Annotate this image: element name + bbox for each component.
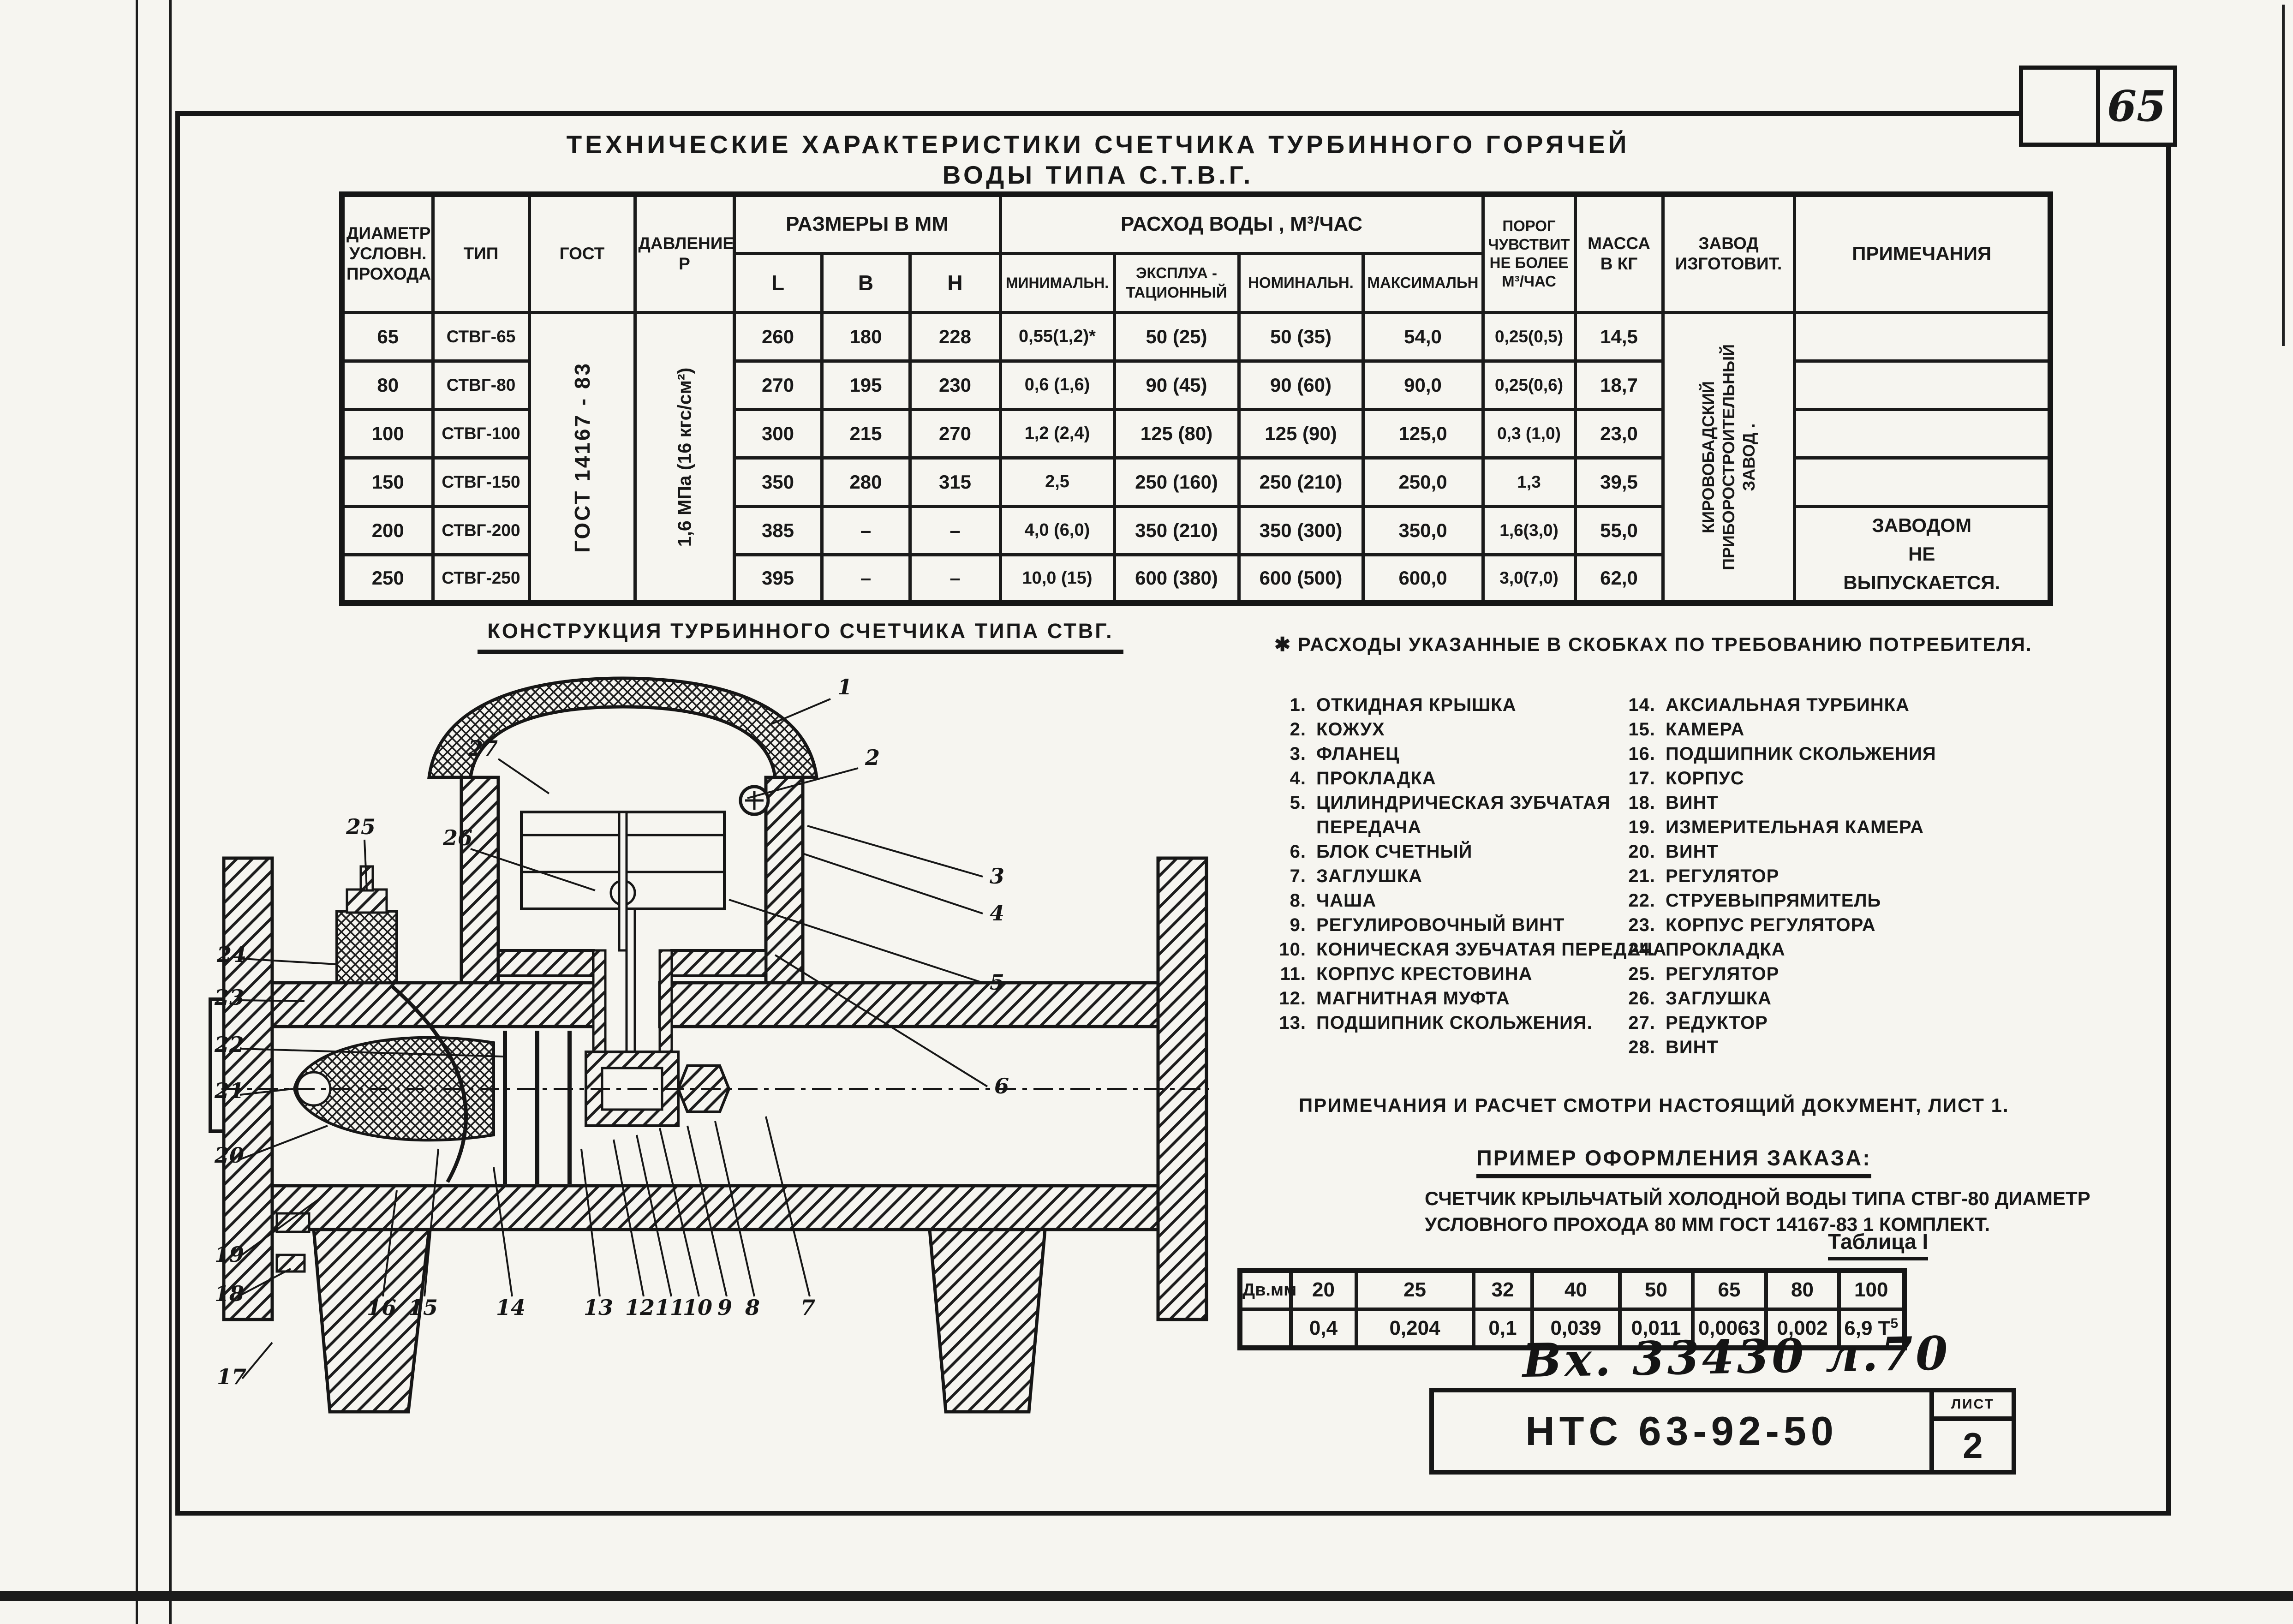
item-text: КАМЕРА (1666, 717, 2091, 742)
sheet-label: ЛИСТ (1934, 1392, 2012, 1421)
spec-cell: 0,3 (1,0) (1483, 409, 1575, 458)
list-item: 20.ВИНТ (1611, 840, 2091, 864)
spec-cell: – (822, 555, 910, 603)
part-label: 10 (683, 1295, 712, 1320)
col-header-oper: ЭКСПЛУА - ТАЦИОННЫЙ (1114, 253, 1239, 312)
col-group-flow: РАСХОД ВОДЫ , М³/ЧАС (1000, 194, 1483, 253)
item-number: 16. (1611, 742, 1666, 766)
item-text: ЗАГЛУШКА (1666, 986, 2091, 1011)
plant-merged-cell: КИРОВОБАДСКИЙ ПРИБОРОСТРОИТЕЛЬНЫЙ ЗАВОД … (1663, 312, 1794, 603)
list-item: 19.ИЗМЕРИТЕЛЬНАЯ КАМЕРА (1611, 815, 2091, 840)
part-label: 4 (990, 901, 1004, 925)
item-number: 18. (1611, 791, 1666, 815)
spec-cell: 50 (25) (1114, 312, 1239, 361)
spec-cell: 3,0(7,0) (1483, 555, 1575, 603)
list-item: 26.ЗАГЛУШКА (1611, 986, 2091, 1011)
item-number: 24. (1611, 937, 1666, 962)
table1-col: 100 (1839, 1271, 1905, 1309)
col-header-min: МИНИМАЛЬН. (1000, 253, 1114, 312)
item-text: РЕГУЛЯТОР (1666, 864, 2091, 889)
spec-cell: 215 (822, 409, 910, 458)
spec-cell: 350,0 (1363, 506, 1483, 555)
spec-cell: 230 (910, 361, 1000, 409)
spec-cell: 350 (210) (1114, 506, 1239, 555)
spec-cell: 150 (342, 458, 433, 506)
table1-value: 0,204 (1356, 1309, 1474, 1348)
spec-cell: СТВГ-100 (433, 409, 529, 458)
col-header-nom: НОМИНАЛЬН. (1239, 253, 1363, 312)
part-label: 23 (214, 985, 244, 1010)
spec-cell: 80 (342, 361, 433, 409)
spec-cell: 0,25(0,5) (1483, 312, 1575, 361)
part-label: 16 (367, 1295, 396, 1320)
part-label: 2 (865, 745, 880, 770)
spec-cell: 90 (45) (1114, 361, 1239, 409)
pressure-merged-cell: 1,6 МПа (16 кгс/см²) (635, 312, 734, 603)
drawing-title: КОНСТРУКЦИЯ ТУРБИННОГО СЧЕТЧИКА ТИПА СТВ… (478, 619, 1123, 654)
item-text: РЕГУЛЯТОР (1666, 962, 2091, 986)
col-header-B: В (822, 253, 910, 312)
spec-cell: 350 (300) (1239, 506, 1363, 555)
flow-footnote: ✱ РАСХОДЫ УКАЗАННЫЕ В СКОБКАХ ПО ТРЕБОВА… (1274, 633, 2128, 656)
item-number: 23. (1611, 913, 1666, 937)
spec-cell: 250 (160) (1114, 458, 1239, 506)
item-number: 27. (1611, 1011, 1666, 1035)
gost-value: ГОСТ 14167 - 83 (570, 314, 595, 600)
col-header-L: L (734, 253, 822, 312)
spec-cell: 600,0 (1363, 555, 1483, 603)
notes-merged-cell: ЗАВОДОМ НЕ ВЫПУСКАЕТСЯ. (1794, 506, 2050, 603)
list-item: 21.РЕГУЛЯТОР (1611, 864, 2091, 889)
spec-cell: 180 (822, 312, 910, 361)
order-example-body: СЧЕТЧИК КРЫЛЬЧАТЫЙ ХОЛОДНОЙ ВОДЫ ТИПА СТ… (1425, 1186, 2135, 1237)
page-number-box-empty (2019, 66, 2100, 147)
spec-cell: 90 (60) (1239, 361, 1363, 409)
item-text: ВИНТ (1666, 791, 2091, 815)
list-item: 17.КОРПУС (1611, 766, 2091, 791)
col-header-plant: ЗАВОД ИЗГОТОВИТ. (1663, 194, 1794, 312)
scan-right-streak (2282, 5, 2285, 346)
item-text: РЕДУКТОР (1666, 1011, 2091, 1035)
list-item: 14.АКСИАЛЬНАЯ ТУРБИНКА (1611, 693, 2091, 717)
part-label: 18 (215, 1281, 244, 1306)
spec-cell: 90,0 (1363, 361, 1483, 409)
item-number: 14. (1611, 693, 1666, 717)
spec-cell: 600 (380) (1114, 555, 1239, 603)
part-label: 7 (800, 1295, 815, 1320)
part-label: 14 (496, 1295, 525, 1320)
spec-cell: 200 (342, 506, 433, 555)
page-number: 65 (2107, 81, 2166, 131)
part-label: 13 (584, 1295, 613, 1320)
spec-cell: – (822, 506, 910, 555)
spec-cell: 0,25(0,6) (1483, 361, 1575, 409)
item-text: ПРОКЛАДКА (1666, 937, 2091, 962)
spec-table: ДИАМЕТР УСЛОВН. ПРОХОДА ТИП ГОСТ ДАВЛЕНИ… (339, 191, 2053, 606)
item-number: 4. (1262, 766, 1316, 791)
spec-cell: 600 (500) (1239, 555, 1363, 603)
col-header-mass: МАССА В КГ (1575, 194, 1663, 312)
notes-cell-empty (1794, 361, 2050, 409)
part-label: 24 (216, 942, 246, 967)
item-number: 9. (1262, 913, 1316, 937)
spec-cell: 250 (210) (1239, 458, 1363, 506)
item-number: 8. (1262, 889, 1316, 913)
spec-cell: 1,6(3,0) (1483, 506, 1575, 555)
list-item: 28.ВИНТ (1611, 1035, 2091, 1060)
spec-cell: СТВГ-65 (433, 312, 529, 361)
sheet-edge-line-2 (169, 0, 172, 1624)
turbine-meter-cross-section-drawing: 1 2 3 4 5 6 7 8 9 10 11 12 13 14 15 16 1… (198, 660, 1232, 1444)
table1-col: 32 (1474, 1271, 1532, 1309)
spec-cell: 250,0 (1363, 458, 1483, 506)
gost-merged-cell: ГОСТ 14167 - 83 (529, 312, 635, 603)
part-label: 27 (468, 736, 498, 761)
spec-cell: 10,0 (15) (1000, 555, 1114, 603)
spec-cell: 14,5 (1575, 312, 1663, 361)
spec-cell: – (910, 506, 1000, 555)
spec-cell: 1,3 (1483, 458, 1575, 506)
item-number: 6. (1262, 840, 1316, 864)
item-text: АКСИАЛЬНАЯ ТУРБИНКА (1666, 693, 2091, 717)
list-item: 15.КАМЕРА (1611, 717, 2091, 742)
notes-cell-empty (1794, 458, 2050, 506)
item-text: ПОДШИПНИК СКОЛЬЖЕНИЯ (1666, 742, 2091, 766)
order-example-title: ПРИМЕР ОФОРМЛЕНИЯ ЗАКАЗА: (1476, 1145, 1871, 1178)
spec-cell: СТВГ-80 (433, 361, 529, 409)
spec-cell: 315 (910, 458, 1000, 506)
scanned-engineering-sheet: { "page": { "number": "65", "sheet_label… (0, 0, 2293, 1624)
part-label: 8 (745, 1295, 760, 1320)
spec-cell: 228 (910, 312, 1000, 361)
part-label: 22 (214, 1032, 244, 1057)
table1-col: 80 (1766, 1271, 1839, 1309)
spec-cell: 350 (734, 458, 822, 506)
item-text: ВИНТ (1666, 840, 2091, 864)
part-label: 6 (994, 1074, 1009, 1099)
spec-cell: 0,6 (1,6) (1000, 361, 1114, 409)
item-number: 13. (1262, 1011, 1316, 1035)
item-text: СТРУЕВЫПРЯМИТЕЛЬ (1666, 889, 2091, 913)
col-header-type: ТИП (433, 194, 529, 312)
list-item: 24.ПРОКЛАДКА (1611, 937, 2091, 962)
spec-cell: – (910, 555, 1000, 603)
col-header-gost: ГОСТ (529, 194, 635, 312)
item-number: 2. (1262, 717, 1316, 742)
pressure-value: 1,6 МПа (16 кгс/см²) (674, 314, 695, 600)
spec-cell: 50 (35) (1239, 312, 1363, 361)
part-label: 1 (837, 675, 852, 699)
see-sheet-note: ПРИМЕЧАНИЯ И РАСЧЕТ СМОТРИ НАСТОЯЩИЙ ДОК… (1299, 1094, 2138, 1116)
item-text: ИЗМЕРИТЕЛЬНАЯ КАМЕРА (1666, 815, 2091, 840)
parts-list-right: 14.АКСИАЛЬНАЯ ТУРБИНКА 15.КАМЕРА 16.ПОДШ… (1611, 693, 2091, 1060)
spec-cell: 4,0 (6,0) (1000, 506, 1114, 555)
table1-col: 25 (1356, 1271, 1474, 1309)
part-label: 12 (625, 1295, 655, 1320)
page-number-box: 65 (2096, 66, 2177, 147)
spec-cell: 385 (734, 506, 822, 555)
part-label: 5 (990, 970, 1004, 995)
spec-cell: 54,0 (1363, 312, 1483, 361)
table1-row-label: Дв.мм (1240, 1271, 1291, 1309)
table1-col: 50 (1620, 1271, 1693, 1309)
item-number: 17. (1611, 766, 1666, 791)
item-number: 5. (1262, 791, 1316, 840)
list-item: 27.РЕДУКТОР (1611, 1011, 2091, 1035)
item-number: 11. (1262, 962, 1316, 986)
document-number: НТС 63-92-50 (1434, 1392, 1929, 1470)
col-header-diameter: ДИАМЕТР УСЛОВН. ПРОХОДА (342, 194, 433, 312)
spec-cell: 270 (910, 409, 1000, 458)
part-label: 3 (990, 864, 1004, 889)
table1-col: 40 (1532, 1271, 1620, 1309)
handwritten-registration: Вх. 33430 л.70 (1522, 1326, 1951, 1388)
spec-cell: 65 (342, 312, 433, 361)
item-number: 19. (1611, 815, 1666, 840)
sheet-cell: ЛИСТ 2 (1929, 1392, 2012, 1470)
item-text: КОРПУС (1666, 766, 2091, 791)
item-text: КОРПУС РЕГУЛЯТОРА (1666, 913, 2091, 937)
sheet-edge-line (136, 0, 138, 1624)
table1-value: 0,4 (1291, 1309, 1356, 1348)
item-number: 22. (1611, 889, 1666, 913)
item-number: 25. (1611, 962, 1666, 986)
item-number: 26. (1611, 986, 1666, 1011)
spec-cell: 39,5 (1575, 458, 1663, 506)
table1-col: 65 (1693, 1271, 1766, 1309)
spec-cell: 0,55(1,2)* (1000, 312, 1114, 361)
spec-cell: 280 (822, 458, 910, 506)
item-number: 1. (1262, 693, 1316, 717)
notes-cell-empty (1794, 312, 2050, 361)
col-header-max: МАКСИМАЛЬН (1363, 253, 1483, 312)
part-label: 17 (217, 1364, 246, 1389)
spec-cell: 195 (822, 361, 910, 409)
part-label: 25 (346, 814, 376, 839)
item-number: 21. (1611, 864, 1666, 889)
item-number: 12. (1262, 986, 1316, 1011)
sheet-number: 2 (1934, 1421, 2012, 1470)
spec-cell: 395 (734, 555, 822, 603)
item-number: 28. (1611, 1035, 1666, 1060)
spec-cell: 1,2 (2,4) (1000, 409, 1114, 458)
col-header-threshold: ПОРОГ ЧУВСТВИТ НЕ БОЛЕЕ М³/ЧАС (1483, 194, 1575, 312)
spec-cell: 250 (342, 555, 433, 603)
part-label: 21 (214, 1078, 244, 1103)
item-text: ВИНТ (1666, 1035, 2091, 1060)
col-header-H: Н (910, 253, 1000, 312)
part-label: 15 (408, 1295, 438, 1320)
list-item: 23.КОРПУС РЕГУЛЯТОРА (1611, 913, 2091, 937)
part-label: 20 (214, 1143, 244, 1168)
spec-cell: 2,5 (1000, 458, 1114, 506)
part-label: 9 (717, 1295, 732, 1320)
title-block: НТС 63-92-50 ЛИСТ 2 (1429, 1388, 2016, 1475)
list-item: 22.СТРУЕВЫПРЯМИТЕЛЬ (1611, 889, 2091, 913)
spec-cell: 270 (734, 361, 822, 409)
table1-col: 20 (1291, 1271, 1356, 1309)
list-item: 16.ПОДШИПНИК СКОЛЬЖЕНИЯ (1611, 742, 2091, 766)
item-number: 3. (1262, 742, 1316, 766)
spec-cell: СТВГ-250 (433, 555, 529, 603)
part-label: 11 (655, 1295, 685, 1320)
item-number: 15. (1611, 717, 1666, 742)
table1-cell-empty (1240, 1309, 1291, 1348)
part-label: 19 (215, 1242, 244, 1267)
item-number: 10. (1262, 937, 1316, 962)
spec-cell: 62,0 (1575, 555, 1663, 603)
spec-cell: 23,0 (1575, 409, 1663, 458)
spec-cell: 125 (80) (1114, 409, 1239, 458)
spec-cell: 125 (90) (1239, 409, 1363, 458)
spec-cell: СТВГ-200 (433, 506, 529, 555)
col-group-dimensions: РАЗМЕРЫ В ММ (734, 194, 1000, 253)
spec-cell: СТВГ-150 (433, 458, 529, 506)
part-label: 26 (442, 825, 472, 850)
notes-cell-empty (1794, 409, 2050, 458)
plant-value: КИРОВОБАДСКИЙ ПРИБОРОСТРОИТЕЛЬНЫЙ ЗАВОД … (1698, 319, 1759, 596)
list-item: 18.ВИНТ (1611, 791, 2091, 815)
spec-cell: 55,0 (1575, 506, 1663, 555)
spec-cell: 100 (342, 409, 433, 458)
item-number: 7. (1262, 864, 1316, 889)
table1-caption: Таблица I (1828, 1229, 1928, 1260)
scan-bottom-shadow (0, 1591, 2293, 1601)
spec-cell: 260 (734, 312, 822, 361)
col-header-notes: ПРИМЕЧАНИЯ (1794, 194, 2050, 312)
spec-cell: 300 (734, 409, 822, 458)
list-item: 25.РЕГУЛЯТОР (1611, 962, 2091, 986)
col-header-pressure: ДАВЛЕНИЕ Р (635, 194, 734, 312)
spec-cell: 18,7 (1575, 361, 1663, 409)
spec-cell: 125,0 (1363, 409, 1483, 458)
item-number: 20. (1611, 840, 1666, 864)
